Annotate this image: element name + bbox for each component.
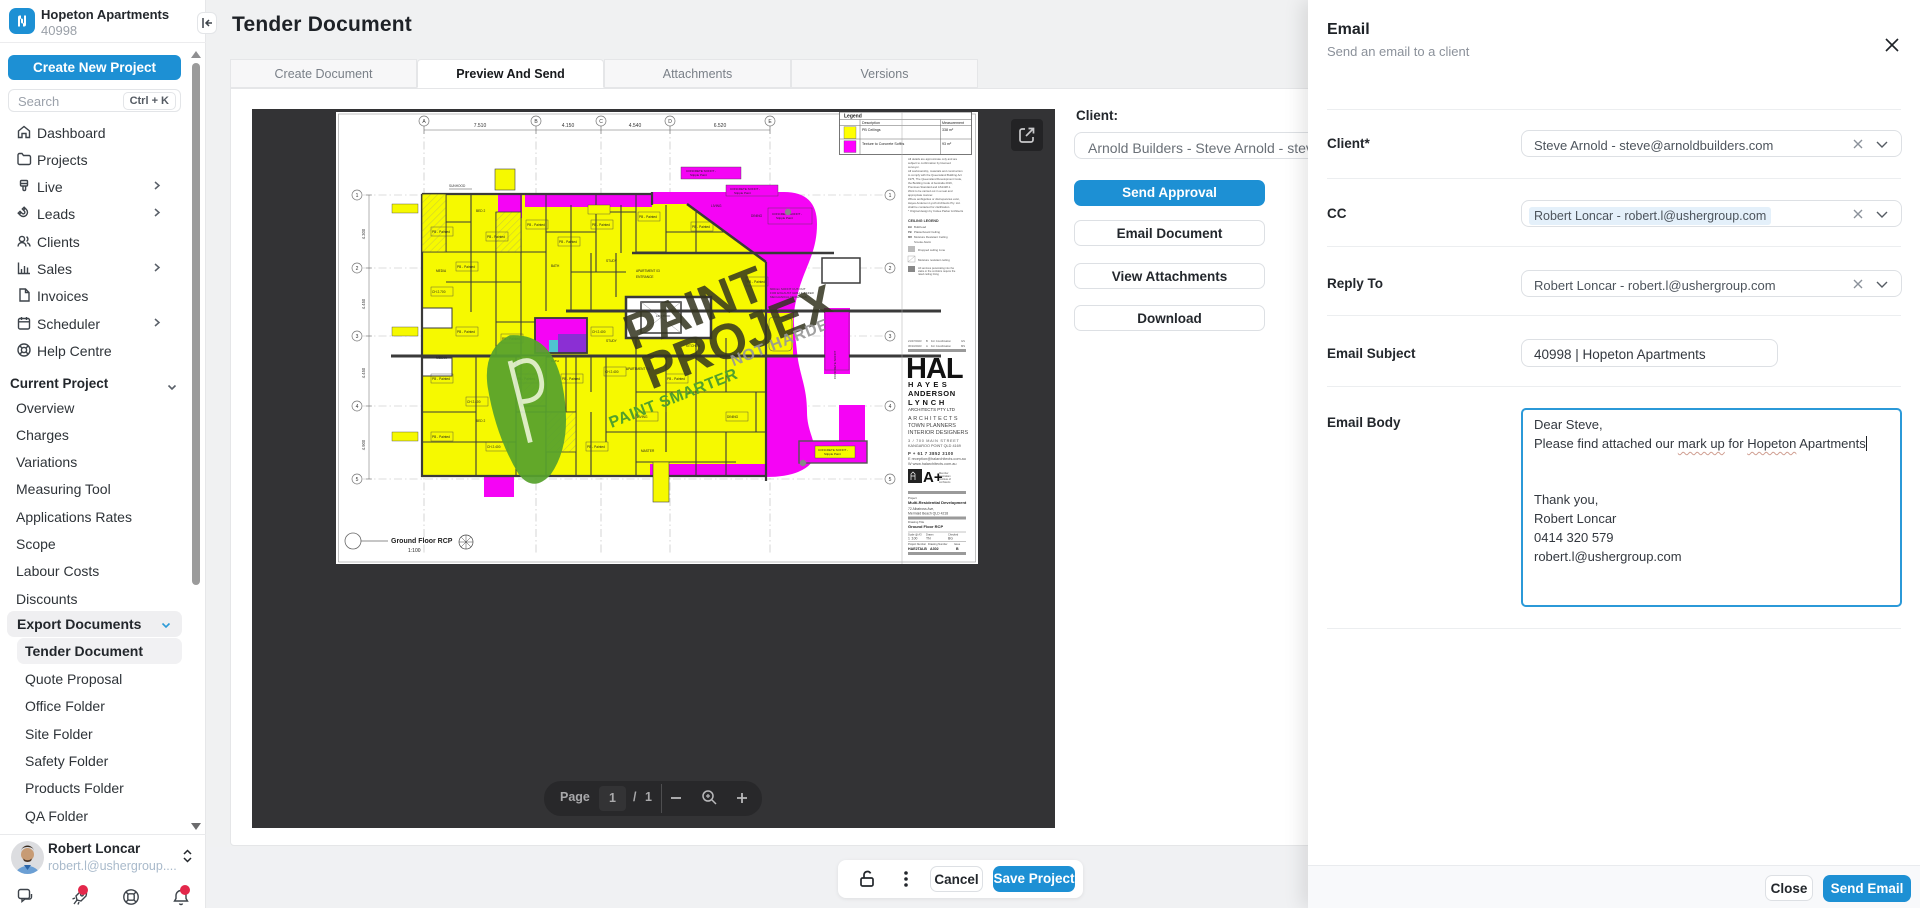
svg-text:Texture to Concrete Soffits: Texture to Concrete Soffits	[862, 142, 904, 146]
svg-text:3: 3	[889, 334, 892, 340]
svg-text:2: 2	[889, 266, 892, 272]
svg-text:Dropped ceiling zone: Dropped ceiling zone	[918, 248, 946, 252]
svg-text:CH 2.400: CH 2.400	[467, 400, 481, 404]
svg-text:PB - Painted: PB - Painted	[432, 377, 450, 381]
svg-text:TN: TN	[926, 537, 931, 541]
svg-text:4.450: 4.450	[361, 298, 366, 309]
svg-text:PB - Painted: PB - Painted	[592, 223, 610, 227]
svg-text:72 Albatross Ave,: 72 Albatross Ave,	[908, 507, 934, 511]
svg-text:C: C	[599, 119, 603, 125]
svg-text:1 :100: 1 :100	[908, 537, 918, 541]
svg-text:7.510: 7.510	[474, 123, 487, 129]
svg-text:A: A	[926, 344, 928, 348]
svg-text:PB - Painted: PB - Painted	[587, 445, 605, 449]
svg-text:Stipple Paint: Stipple Paint	[734, 191, 751, 195]
svg-text:4.450: 4.450	[361, 367, 366, 378]
svg-text:MASTER: MASTER	[641, 449, 655, 453]
svg-text:PB: PB	[908, 230, 912, 234]
svg-text:Mermaid Beach QLD 4218: Mermaid Beach QLD 4218	[908, 512, 948, 516]
svg-text:4: 4	[889, 404, 892, 410]
svg-text:1: 1	[889, 193, 892, 199]
svg-text:ENTRANCE: ENTRANCE	[636, 275, 654, 279]
svg-text:4.150: 4.150	[562, 123, 575, 129]
svg-text:ARCHITECTS: ARCHITECTS	[908, 416, 959, 422]
svg-text:DINING: DINING	[727, 415, 739, 419]
svg-text:Drawing Number: Drawing Number	[928, 542, 948, 546]
svg-text:A302: A302	[930, 547, 939, 551]
svg-text:B: B	[956, 547, 959, 551]
svg-text:Legend: Legend	[844, 114, 862, 120]
svg-text:PB - Painted: PB - Painted	[559, 240, 577, 244]
svg-text:CH 2.400: CH 2.400	[592, 330, 606, 334]
svg-text:P + 61 7 3852 3100: P + 61 7 3852 3100	[908, 451, 954, 456]
svg-text:MR: MR	[908, 235, 912, 239]
svg-text:W www.halarchitects.com.au: W www.halarchitects.com.au	[908, 462, 957, 466]
svg-text:1:100: 1:100	[408, 548, 421, 554]
svg-text:Measurement: Measurement	[942, 121, 964, 125]
svg-text:5: 5	[356, 477, 359, 483]
svg-text:Multi-Residential Development: Multi-Residential Development	[908, 500, 967, 505]
svg-text:BED 2: BED 2	[476, 419, 485, 423]
svg-text:Ground Floor RCP: Ground Floor RCP	[391, 538, 453, 545]
svg-text:INTERIOR DESIGNERS: INTERIOR DESIGNERS	[908, 430, 969, 436]
svg-text:B: B	[926, 339, 928, 343]
svg-text:Stipple Paint: Stipple Paint	[824, 452, 841, 456]
svg-text:D: D	[668, 119, 672, 125]
svg-text:Smoke Alarm: Smoke Alarm	[914, 240, 932, 244]
svg-text:CH 2.400: CH 2.400	[487, 445, 501, 449]
svg-text:Plasterboard Ceiling: Plasterboard Ceiling	[914, 230, 940, 234]
svg-text:Bulkhead: Bulkhead	[914, 225, 926, 229]
svg-text:Moisture resistant ceiling: Moisture resistant ceiling	[918, 258, 950, 262]
svg-text:DINING: DINING	[751, 214, 763, 218]
svg-text:CONCRETE SOFFIT: CONCRETE SOFFIT	[833, 350, 837, 379]
svg-text:5: 5	[889, 477, 892, 483]
svg-text:Stipple Paint: Stipple Paint	[776, 216, 793, 220]
svg-text:E reception@halarchitects.com: E reception@halarchitects.com.au	[908, 457, 966, 461]
svg-text:MEDIA: MEDIA	[436, 356, 448, 360]
svg-text:PB - Painted: PB - Painted	[639, 215, 657, 219]
svg-text:MEDIA: MEDIA	[436, 269, 447, 273]
svg-text:6.520: 6.520	[714, 123, 727, 129]
svg-text:PB - Painted: PB - Painted	[487, 235, 505, 239]
svg-text:PB - Painted: PB - Painted	[432, 435, 450, 439]
svg-text:Moisture Resistant Ceiling: Moisture Resistant Ceiling	[914, 235, 948, 239]
svg-text:BED 2: BED 2	[476, 209, 485, 213]
svg-text:BG: BG	[948, 537, 953, 541]
svg-text:CH 2.400: CH 2.400	[605, 370, 619, 374]
svg-text:3 / 700 MAIN STREET: 3 / 700 MAIN STREET	[908, 439, 960, 443]
svg-text:STUDY: STUDY	[606, 259, 618, 263]
svg-text:Ground Floor RCP: Ground Floor RCP	[908, 524, 943, 529]
svg-text:BATH: BATH	[551, 264, 560, 268]
svg-text:4: 4	[356, 404, 359, 410]
svg-text:LIVING: LIVING	[711, 204, 722, 208]
svg-text:Issue: Issue	[954, 542, 961, 546]
svg-text:21/07/2023: 21/07/2023	[908, 339, 922, 343]
svg-text:For Coordination: For Coordination	[931, 339, 952, 343]
svg-text:338 m²: 338 m²	[942, 128, 954, 132]
svg-text:STUDY: STUDY	[606, 339, 618, 343]
svg-text:1: 1	[356, 193, 359, 199]
svg-text:CEILING LEGEND: CEILING LEGEND	[908, 219, 939, 223]
svg-text:GS: GS	[961, 339, 965, 343]
svg-text:ARCHITECTS PTY LTD: ARCHITECTS PTY LTD	[908, 407, 955, 412]
svg-text:BH: BH	[908, 225, 912, 229]
svg-text:Project Number: Project Number	[908, 542, 926, 546]
svg-text:rated ceiling lining: rated ceiling lining	[918, 272, 939, 276]
svg-text:For Coordination: For Coordination	[931, 344, 952, 348]
svg-text:KANGAROO POINT QLD 4169: KANGAROO POINT QLD 4169	[908, 444, 961, 448]
svg-text:PB - Painted: PB - Painted	[457, 330, 475, 334]
svg-text:ANDERSON: ANDERSON	[908, 389, 956, 398]
svg-text:Description: Description	[862, 121, 880, 125]
svg-text:LYNCH: LYNCH	[908, 398, 947, 407]
svg-text:3: 3	[356, 334, 359, 340]
svg-text:HAYES: HAYES	[908, 380, 950, 389]
svg-text:PB Ceilings: PB Ceilings	[862, 128, 881, 132]
svg-text:93 m²: 93 m²	[942, 142, 952, 146]
svg-text:CH 2.700: CH 2.700	[432, 290, 446, 294]
svg-text:SUNHOOD: SUNHOOD	[449, 184, 466, 188]
svg-text:* Original design by Cottee Pa: * Original design by Cottee Parker Archi…	[908, 209, 964, 213]
svg-text:MS: MS	[961, 344, 965, 348]
svg-text:TOWN PLANNERS: TOWN PLANNERS	[908, 423, 956, 429]
svg-text:4.540: 4.540	[629, 123, 642, 129]
svg-text:APARTMENT 03: APARTMENT 03	[636, 269, 660, 273]
svg-text:4.300: 4.300	[361, 228, 366, 239]
svg-text:PB - Painted: PB - Painted	[457, 265, 475, 269]
svg-text:HAE2TALB: HAE2TALB	[908, 547, 927, 551]
svg-text:Stipple Paint: Stipple Paint	[690, 173, 707, 177]
svg-text:PB - Painted: PB - Painted	[527, 223, 545, 227]
svg-text:4.900: 4.900	[361, 439, 366, 450]
svg-text:PB - Painted: PB - Painted	[432, 230, 450, 234]
svg-text:Architects: Architects	[939, 480, 951, 484]
svg-text:PB - Painted: PB - Painted	[562, 377, 580, 381]
svg-text:30/10/2023: 30/10/2023	[908, 344, 922, 348]
svg-text:PB - Painted: PB - Painted	[692, 225, 710, 229]
svg-text:2: 2	[356, 266, 359, 272]
